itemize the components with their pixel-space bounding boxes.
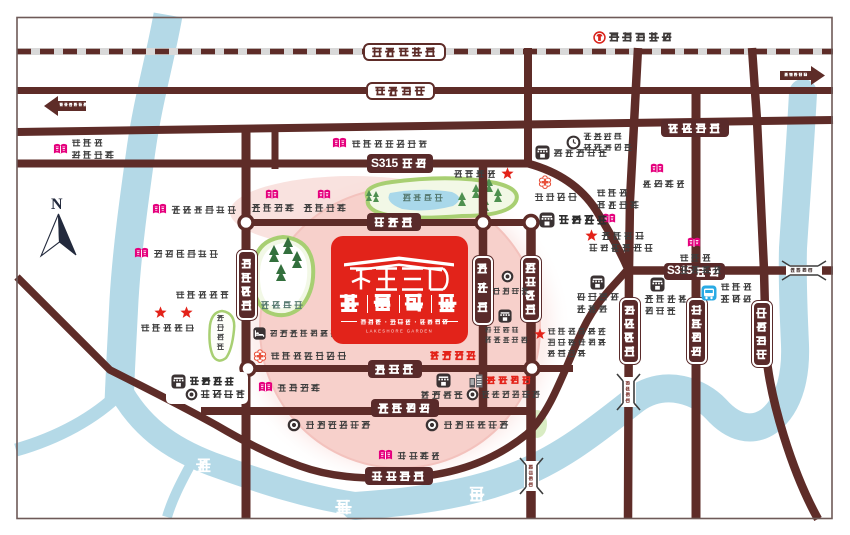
svg-text:LAKESHORE GARDEN: LAKESHORE GARDEN bbox=[366, 329, 433, 334]
